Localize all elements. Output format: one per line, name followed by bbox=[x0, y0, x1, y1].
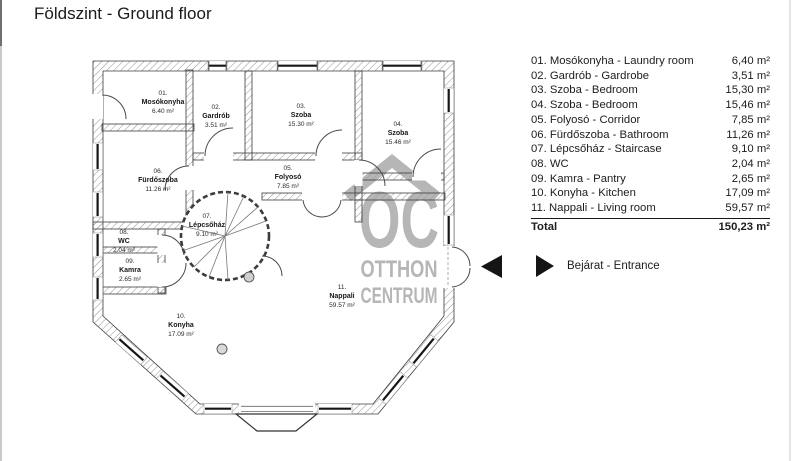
svg-text:11.26 m²: 11.26 m² bbox=[145, 186, 171, 193]
legend-label: 09. Kamra - Pantry bbox=[531, 172, 626, 187]
legend-row: 06. Fürdőszoba - Bathroom11,26 m² bbox=[531, 128, 770, 143]
svg-text:Fürdőszoba: Fürdőszoba bbox=[138, 177, 178, 184]
legend-area: 15,46 m² bbox=[725, 98, 770, 113]
svg-text:17.09 m²: 17.09 m² bbox=[168, 331, 194, 338]
legend-area: 3,51 m² bbox=[732, 69, 770, 84]
svg-text:Kamra: Kamra bbox=[119, 267, 141, 274]
legend-total-row: Total150,23 m² bbox=[531, 218, 770, 235]
svg-text:03.: 03. bbox=[296, 103, 305, 110]
legend-row: 10. Konyha - Kitchen17,09 m² bbox=[531, 186, 770, 201]
legend-label: 02. Gardrób - Gardrobe bbox=[531, 69, 649, 84]
entrance-note: Bejárat - Entrance bbox=[536, 253, 660, 279]
legend-area: 7,85 m² bbox=[732, 113, 770, 128]
svg-text:Szoba: Szoba bbox=[291, 112, 312, 119]
svg-text:2.65 m²: 2.65 m² bbox=[119, 276, 142, 283]
room-label-wc: 08.WC2.04 m² bbox=[113, 229, 136, 254]
legend-row: 02. Gardrób - Gardrobe3,51 m² bbox=[531, 69, 770, 84]
legend-label: 01. Mosókonyha - Laundry room bbox=[531, 54, 694, 69]
legend-row: 08. WC2,04 m² bbox=[531, 157, 770, 172]
entrance-door-arc-upper bbox=[452, 247, 470, 266]
windows-bottom bbox=[204, 403, 352, 431]
svg-text:Szoba: Szoba bbox=[388, 130, 409, 137]
room-label-mosokonyha: 01.Mosókonyha6.40 m² bbox=[142, 90, 185, 115]
legend-row: 11. Nappali - Living room59,57 m² bbox=[531, 201, 770, 216]
legend-label: 11. Nappali - Living room bbox=[531, 201, 656, 216]
legend-label: 03. Szoba - Bedroom bbox=[531, 83, 638, 98]
legend-label: 04. Szoba - Bedroom bbox=[531, 98, 638, 113]
svg-text:59.57 m²: 59.57 m² bbox=[329, 302, 355, 309]
legend-label: 07. Lépcsőház - Staircase bbox=[531, 142, 662, 157]
watermark-line2: CENTRUM bbox=[361, 283, 438, 308]
room-label-folyoso: 05.Folyosó7.85 m² bbox=[275, 165, 302, 190]
legend-area: 17,09 m² bbox=[725, 186, 770, 201]
legend-label: 08. WC bbox=[531, 157, 569, 172]
watermark-line1: OTTHON bbox=[361, 256, 438, 283]
svg-text:10.: 10. bbox=[176, 313, 185, 320]
svg-text:09.: 09. bbox=[125, 258, 134, 265]
legend-area: 11,26 m² bbox=[726, 128, 770, 143]
legend-total-label: Total bbox=[531, 220, 557, 235]
room-label-nappali: 11.Nappali59.57 m² bbox=[329, 284, 355, 309]
entrance-steps bbox=[236, 414, 317, 431]
legend-row: 05. Folyosó - Corridor7,85 m² bbox=[531, 113, 770, 128]
svg-text:9.10 m²: 9.10 m² bbox=[196, 231, 219, 238]
entrance-triangle-icon bbox=[536, 255, 554, 277]
entrance-label: Bejárat - Entrance bbox=[567, 260, 660, 272]
svg-text:7.85 m²: 7.85 m² bbox=[277, 183, 300, 190]
svg-text:01.: 01. bbox=[158, 90, 167, 97]
svg-text:02.: 02. bbox=[211, 104, 220, 111]
kitchen-column bbox=[217, 344, 227, 354]
svg-text:15.46 m²: 15.46 m² bbox=[385, 139, 411, 146]
svg-text:15.30 m²: 15.30 m² bbox=[288, 121, 314, 128]
svg-text:Konyha: Konyha bbox=[168, 322, 194, 329]
room-label-konyha: 10.Konyha17.09 m² bbox=[168, 313, 194, 338]
legend-row: 01. Mosókonyha - Laundry room6,40 m² bbox=[531, 54, 770, 69]
legend-area: 59,57 m² bbox=[725, 201, 770, 216]
svg-text:6.40 m²: 6.40 m² bbox=[152, 108, 175, 115]
svg-text:05.: 05. bbox=[283, 165, 292, 172]
svg-text:WC: WC bbox=[118, 238, 130, 245]
svg-text:Folyosó: Folyosó bbox=[275, 174, 302, 181]
legend-area: 2,65 m² bbox=[732, 172, 770, 187]
svg-text:Gardrób: Gardrób bbox=[202, 113, 230, 120]
legend-row: 09. Kamra - Pantry2,65 m² bbox=[531, 172, 770, 187]
svg-text:2.04 m²: 2.04 m² bbox=[113, 247, 136, 254]
svg-text:11.: 11. bbox=[338, 284, 347, 291]
svg-text:04.: 04. bbox=[393, 121, 402, 128]
legend-label: 05. Folyosó - Corridor bbox=[531, 113, 640, 128]
spiral-staircase bbox=[181, 192, 269, 282]
svg-text:Nappali: Nappali bbox=[329, 293, 354, 300]
legend-area: 2,04 m² bbox=[732, 157, 770, 172]
stair-post bbox=[244, 272, 254, 282]
legend-row: 07. Lépcsőház - Staircase9,10 m² bbox=[531, 142, 770, 157]
svg-text:08.: 08. bbox=[119, 229, 128, 236]
legend-label: 06. Fürdőszoba - Bathroom bbox=[531, 128, 669, 143]
legend-area: 15,30 m² bbox=[725, 83, 770, 98]
room-label-gardrob: 02.Gardrób3.51 m² bbox=[202, 104, 230, 129]
room-legend: 01. Mosókonyha - Laundry room6,40 m² 02.… bbox=[531, 54, 770, 235]
svg-text:07.: 07. bbox=[202, 213, 211, 220]
room-label-szoba-04: 04.Szoba15.46 m² bbox=[385, 121, 411, 146]
entrance-arrow-icon bbox=[481, 255, 502, 278]
svg-text:Mosókonyha: Mosókonyha bbox=[142, 99, 185, 106]
room-label-kamra: 09.Kamra2.65 m² bbox=[119, 258, 142, 283]
svg-text:3.51 m²: 3.51 m² bbox=[205, 122, 228, 129]
legend-row: 03. Szoba - Bedroom15,30 m² bbox=[531, 83, 770, 98]
entrance-door-arc-lower bbox=[452, 268, 470, 287]
room-label-furdoszoba: 06.Fürdőszoba11.26 m² bbox=[138, 168, 178, 193]
svg-text:Lépcsőház: Lépcsőház bbox=[189, 222, 226, 229]
legend-area: 6,40 m² bbox=[732, 54, 770, 69]
svg-text:06.: 06. bbox=[153, 168, 162, 175]
legend-label: 10. Konyha - Kitchen bbox=[531, 186, 636, 201]
legend-total-area: 150,23 m² bbox=[719, 220, 771, 235]
legend-area: 9,10 m² bbox=[732, 142, 770, 157]
legend-row: 04. Szoba - Bedroom15,46 m² bbox=[531, 98, 770, 113]
watermark-initials: OC bbox=[359, 175, 439, 264]
room-label-szoba-03: 03.Szoba15.30 m² bbox=[288, 103, 314, 128]
